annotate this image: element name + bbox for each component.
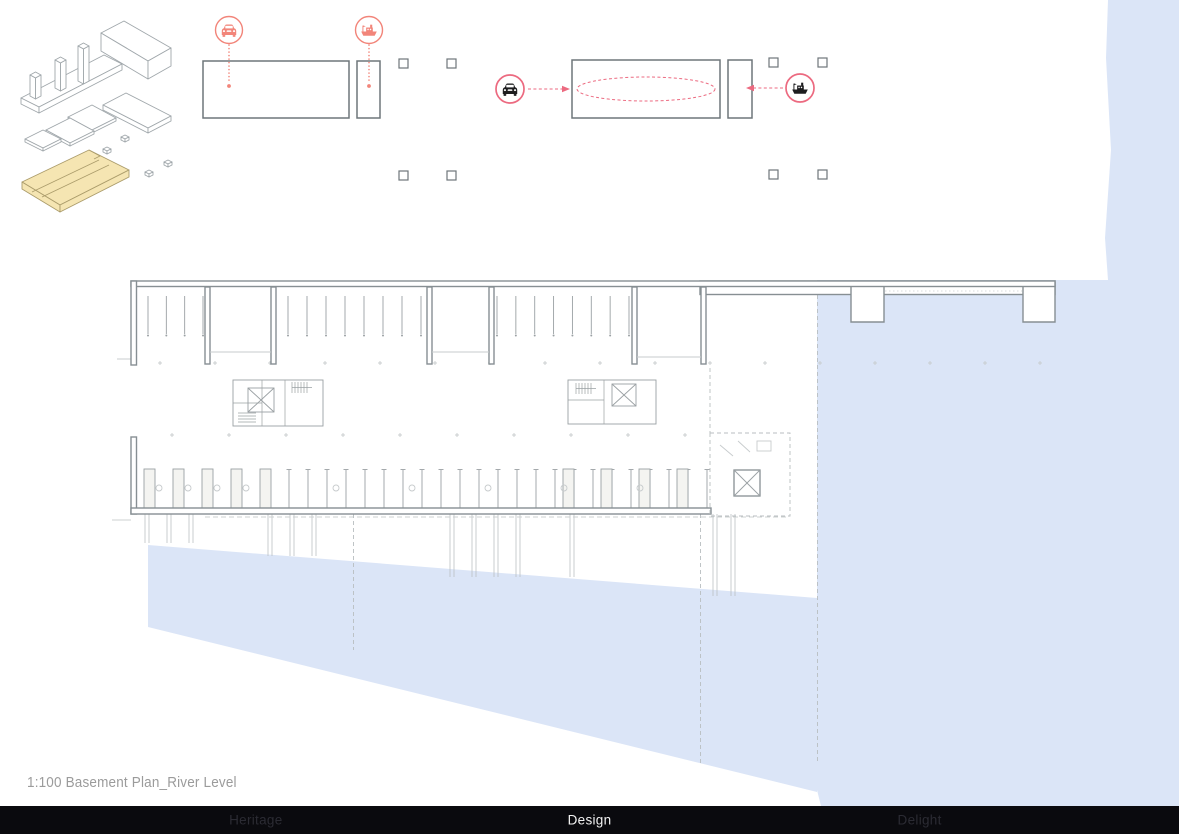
column-marker-squares bbox=[399, 58, 827, 180]
nav-tab-design[interactable]: Design bbox=[568, 813, 612, 828]
quay-notch bbox=[1023, 282, 1055, 322]
access-diagram-flow bbox=[496, 60, 814, 118]
access-diagram-plan bbox=[203, 17, 383, 119]
room-annotations bbox=[720, 441, 771, 456]
nav-tab-delight[interactable]: Delight bbox=[898, 813, 942, 828]
parking-stalls-north bbox=[147, 296, 630, 337]
car-icon bbox=[216, 17, 243, 44]
slide-canvas: 1:100 Basement Plan_River Level Heritage… bbox=[0, 0, 1179, 834]
massing-axon-diagram bbox=[21, 21, 172, 212]
boat-icon bbox=[786, 74, 814, 102]
west-wall bbox=[131, 437, 137, 514]
garage-volume-box bbox=[572, 60, 720, 118]
highlighted-basement-slab bbox=[22, 150, 129, 212]
stair-core-east bbox=[568, 380, 656, 424]
south-wall bbox=[131, 508, 711, 514]
bottom-nav: Heritage Design Delight bbox=[0, 806, 1179, 834]
car-icon bbox=[496, 75, 524, 103]
arrow-left bbox=[746, 85, 754, 91]
circulation-loop bbox=[577, 77, 715, 101]
basement-plan-drawing bbox=[0, 0, 1179, 834]
quay-notch bbox=[851, 282, 884, 322]
garage-volume-box bbox=[203, 61, 349, 118]
elevator-box bbox=[734, 470, 760, 496]
parking-stalls-south bbox=[144, 469, 710, 508]
boat-icon bbox=[356, 17, 383, 44]
nav-tab-heritage[interactable]: Heritage bbox=[229, 813, 282, 828]
arrow-right bbox=[562, 86, 570, 92]
plan-caption: 1:100 Basement Plan_River Level bbox=[27, 774, 237, 791]
stair-core-west bbox=[233, 380, 323, 426]
north-wall bbox=[131, 281, 1055, 287]
dock-volume-box bbox=[728, 60, 752, 118]
